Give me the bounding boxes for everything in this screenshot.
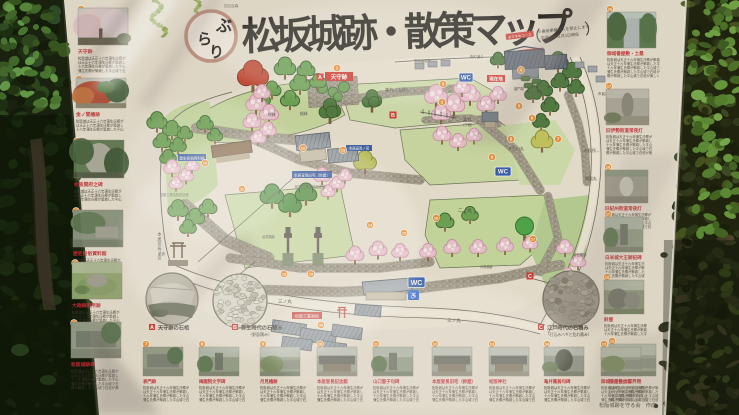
svg-text:松阪城跡碑: 松阪城跡碑: [71, 361, 95, 368]
